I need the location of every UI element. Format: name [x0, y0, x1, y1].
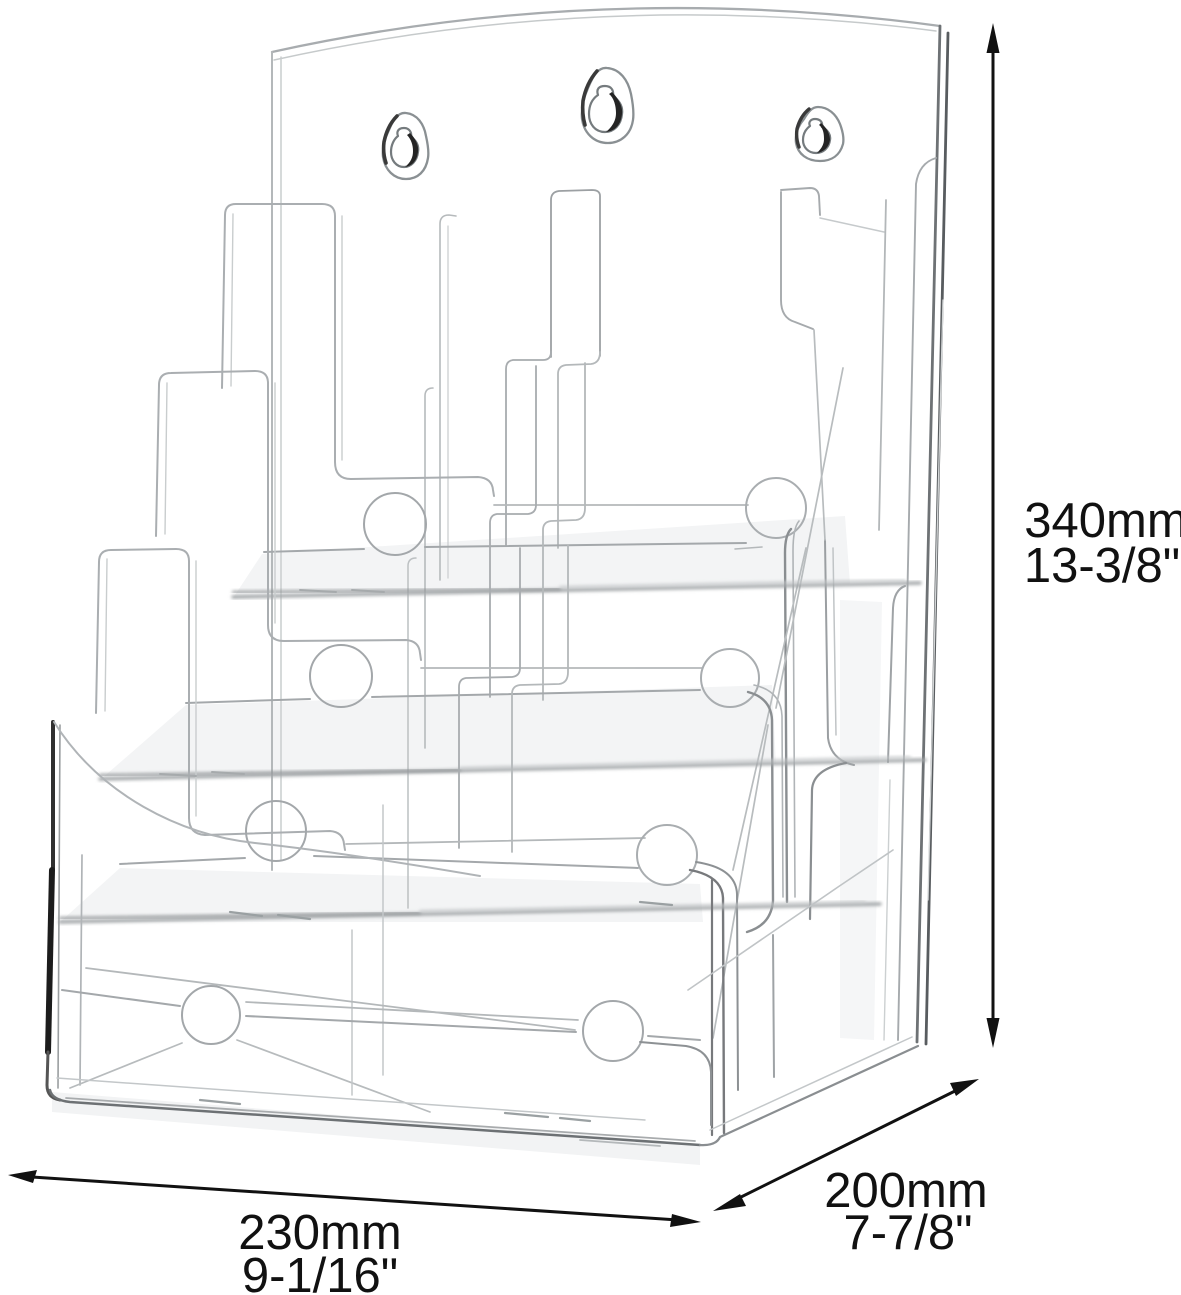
svg-text:7-7/8": 7-7/8" — [843, 1206, 972, 1260]
svg-text:13-3/8": 13-3/8" — [1024, 539, 1180, 593]
svg-text:9-1/16": 9-1/16" — [242, 1249, 398, 1295]
